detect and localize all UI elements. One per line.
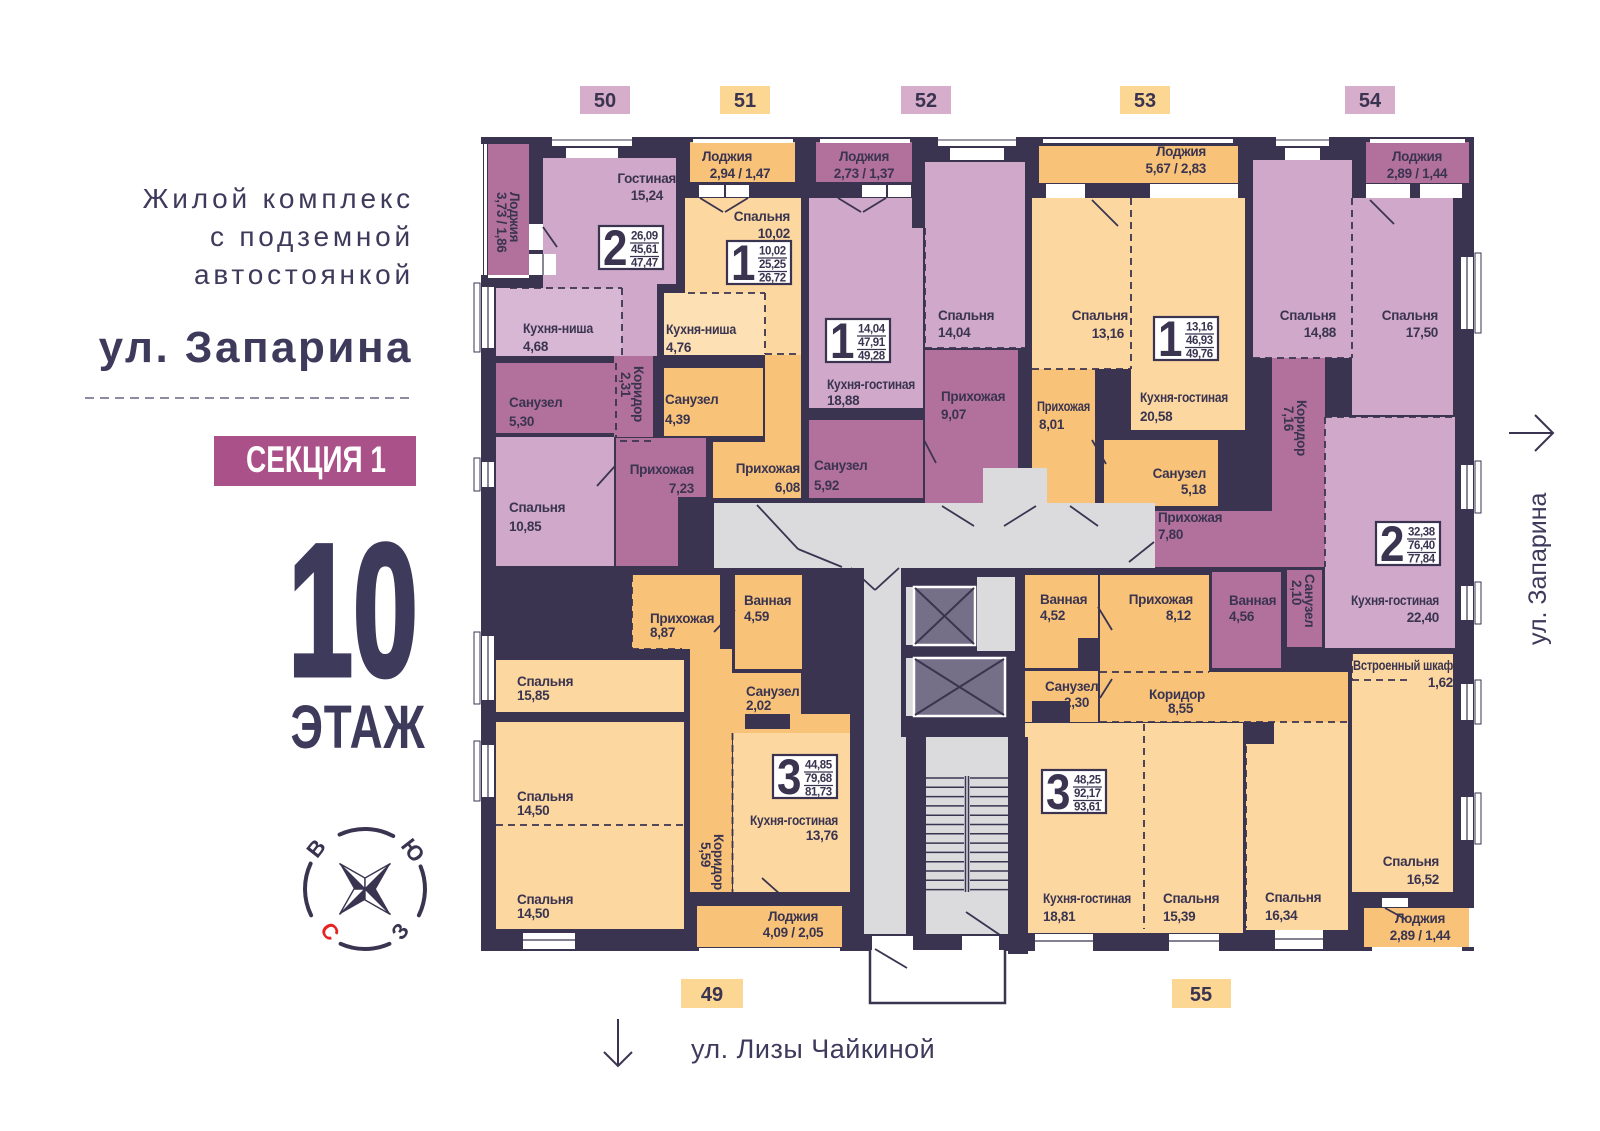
svg-text:5,18: 5,18	[1181, 482, 1207, 497]
svg-text:Лоджия: Лоджия	[839, 149, 889, 164]
svg-text:5,92: 5,92	[814, 478, 839, 493]
svg-text:3: 3	[777, 748, 801, 804]
svg-text:26,09: 26,09	[631, 231, 658, 243]
svg-text:45,61: 45,61	[631, 244, 659, 256]
svg-text:2,89 / 1,44: 2,89 / 1,44	[1387, 166, 1448, 181]
svg-text:7,80: 7,80	[1158, 527, 1183, 542]
svg-text:14,04: 14,04	[858, 324, 886, 336]
svg-text:49: 49	[701, 984, 723, 1006]
svg-text:Спальня: Спальня	[1280, 308, 1336, 323]
svg-text:Спальня: Спальня	[734, 209, 790, 224]
svg-text:14,04: 14,04	[938, 325, 971, 340]
svg-text:5,67 / 2,83: 5,67 / 2,83	[1145, 161, 1206, 176]
svg-text:Кухня-гостиная: Кухня-гостиная	[1140, 390, 1228, 405]
svg-text:22,40: 22,40	[1407, 610, 1439, 625]
svg-text:7,16: 7,16	[1281, 406, 1296, 432]
svg-text:Прихожая: Прихожая	[1037, 399, 1090, 414]
svg-text:Встроенный шкаф: Встроенный шкаф	[1353, 658, 1453, 673]
svg-text:Ванная: Ванная	[744, 593, 791, 608]
svg-text:7,23: 7,23	[669, 481, 695, 496]
svg-text:Кухня-ниша: Кухня-ниша	[666, 322, 737, 337]
svg-text:Коридор: Коридор	[1294, 400, 1309, 456]
svg-text:54: 54	[1359, 90, 1382, 112]
svg-text:13,76: 13,76	[806, 828, 839, 843]
svg-text:Лоджия: Лоджия	[1392, 149, 1442, 164]
svg-text:16,52: 16,52	[1407, 872, 1439, 887]
svg-text:1: 1	[731, 234, 755, 290]
svg-text:1: 1	[1158, 310, 1182, 366]
svg-text:Спальня: Спальня	[509, 500, 565, 515]
svg-text:2: 2	[603, 219, 627, 275]
svg-text:16,34: 16,34	[1265, 908, 1298, 923]
svg-text:51: 51	[734, 90, 756, 112]
svg-text:26,72: 26,72	[759, 273, 786, 285]
svg-text:4,59: 4,59	[744, 609, 769, 624]
svg-text:81,73: 81,73	[805, 787, 832, 799]
svg-text:4,09 / 2,05: 4,09 / 2,05	[763, 925, 824, 940]
svg-text:ул. Запарина: ул. Запарина	[99, 323, 413, 372]
svg-text:Спальня: Спальня	[517, 892, 573, 907]
svg-text:10,85: 10,85	[509, 519, 542, 534]
svg-text:Спальня: Спальня	[1163, 891, 1219, 906]
svg-text:32,38: 32,38	[1408, 527, 1436, 539]
svg-text:Кухня-гостиная: Кухня-гостиная	[1043, 891, 1131, 906]
svg-text:Спальня: Спальня	[1265, 890, 1321, 905]
svg-text:Санузел: Санузел	[1153, 466, 1206, 481]
svg-text:77,84: 77,84	[1408, 554, 1436, 566]
svg-text:4,76: 4,76	[666, 340, 692, 355]
svg-text:25,25: 25,25	[759, 259, 787, 271]
svg-text:Санузел: Санузел	[1045, 679, 1098, 694]
svg-text:Лоджия: Лоджия	[768, 909, 818, 924]
svg-text:Прихожая: Прихожая	[736, 461, 800, 476]
svg-text:2,73 / 1,37: 2,73 / 1,37	[834, 166, 895, 181]
svg-text:Спальня: Спальня	[1383, 854, 1439, 869]
svg-text:Коридор: Коридор	[1149, 687, 1205, 702]
svg-text:49,76: 49,76	[1186, 349, 1213, 361]
svg-text:44,85: 44,85	[805, 760, 833, 772]
svg-text:Санузел: Санузел	[1302, 574, 1317, 627]
svg-text:4,56: 4,56	[1229, 609, 1255, 624]
svg-text:Гостиная: Гостиная	[617, 171, 676, 186]
svg-text:79,68: 79,68	[805, 773, 833, 785]
svg-text:18,88: 18,88	[827, 393, 860, 408]
svg-text:3,73 / 1,86: 3,73 / 1,86	[494, 192, 509, 253]
svg-text:Спальня: Спальня	[517, 674, 573, 689]
svg-text:15,85: 15,85	[517, 688, 550, 703]
svg-text:Прихожая: Прихожая	[630, 462, 694, 477]
svg-text:Ванная: Ванная	[1040, 592, 1087, 607]
svg-text:18,81: 18,81	[1043, 909, 1076, 924]
svg-text:Жилой комплекс: Жилой комплекс	[143, 183, 414, 214]
svg-text:8,01: 8,01	[1039, 417, 1065, 432]
svg-text:8,12: 8,12	[1166, 608, 1191, 623]
svg-text:46,93: 46,93	[1186, 335, 1213, 347]
svg-text:2,89 / 1,44: 2,89 / 1,44	[1390, 928, 1451, 943]
svg-text:6,08: 6,08	[775, 480, 801, 495]
svg-text:8,55: 8,55	[1168, 701, 1194, 716]
svg-text:с подземной: с подземной	[210, 221, 414, 252]
svg-text:Спальня: Спальня	[1072, 308, 1128, 323]
svg-text:Кухня-ниша: Кухня-ниша	[523, 321, 594, 336]
svg-text:8,87: 8,87	[650, 625, 675, 640]
svg-text:2,94 / 1,47: 2,94 / 1,47	[710, 166, 771, 181]
svg-text:Коридор: Коридор	[711, 834, 726, 890]
svg-text:55: 55	[1190, 984, 1212, 1006]
svg-text:2,10: 2,10	[1289, 580, 1304, 605]
svg-text:10,02: 10,02	[758, 226, 790, 241]
svg-text:Санузел: Санузел	[509, 395, 562, 410]
svg-text:14,50: 14,50	[517, 906, 549, 921]
svg-text:Спальня: Спальня	[938, 308, 994, 323]
svg-text:Кухня-гостиная: Кухня-гостиная	[750, 813, 838, 828]
svg-text:49,28: 49,28	[858, 351, 886, 363]
svg-text:47,47: 47,47	[631, 258, 658, 270]
svg-text:50: 50	[594, 90, 616, 112]
svg-text:20,58: 20,58	[1140, 409, 1173, 424]
svg-text:Коридор: Коридор	[631, 366, 646, 422]
svg-text:2,02: 2,02	[746, 698, 771, 713]
svg-text:Прихожая: Прихожая	[1158, 510, 1222, 525]
svg-text:Санузел: Санузел	[814, 458, 867, 473]
svg-text:автостоянкой: автостоянкой	[194, 259, 414, 290]
svg-text:13,16: 13,16	[1186, 322, 1213, 334]
svg-text:ЭТАЖ: ЭТАЖ	[291, 694, 426, 762]
svg-text:17,50: 17,50	[1406, 325, 1438, 340]
svg-text:2: 2	[1380, 515, 1404, 571]
svg-text:93,61: 93,61	[1074, 802, 1102, 814]
svg-text:76,40: 76,40	[1408, 540, 1435, 552]
svg-text:Лоджия: Лоджия	[702, 149, 752, 164]
svg-text:52: 52	[915, 90, 937, 112]
svg-text:Прихожая: Прихожая	[650, 611, 714, 626]
svg-text:4,52: 4,52	[1040, 608, 1065, 623]
svg-text:1: 1	[830, 312, 854, 368]
svg-text:14,88: 14,88	[1304, 325, 1337, 340]
svg-text:Санузел: Санузел	[665, 392, 718, 407]
svg-text:15,24: 15,24	[631, 188, 664, 203]
svg-text:Ванная: Ванная	[1229, 593, 1276, 608]
svg-text:53: 53	[1134, 90, 1156, 112]
svg-text:5,59: 5,59	[698, 842, 713, 867]
svg-text:1,62: 1,62	[1428, 675, 1453, 690]
svg-text:Лоджия: Лоджия	[1156, 144, 1206, 159]
svg-text:5,30: 5,30	[509, 414, 534, 429]
svg-text:2,30: 2,30	[1064, 695, 1089, 710]
svg-text:Лоджия: Лоджия	[1395, 911, 1445, 926]
svg-text:15,39: 15,39	[1163, 909, 1195, 924]
svg-text:Прихожая: Прихожая	[941, 389, 1005, 404]
svg-text:СЕКЦИЯ 1: СЕКЦИЯ 1	[246, 439, 386, 480]
svg-text:3: 3	[1046, 763, 1070, 819]
svg-text:Спальня: Спальня	[1382, 308, 1438, 323]
svg-text:Кухня-гостиная: Кухня-гостиная	[1351, 593, 1439, 608]
svg-text:10,02: 10,02	[759, 246, 786, 258]
svg-text:Лоджия: Лоджия	[507, 192, 522, 242]
svg-text:Кухня-гостиная: Кухня-гостиная	[827, 377, 915, 392]
svg-text:14,50: 14,50	[517, 803, 549, 818]
svg-text:Спальня: Спальня	[517, 789, 573, 804]
svg-text:ул. Лизы Чайкиной: ул. Лизы Чайкиной	[691, 1034, 935, 1064]
svg-text:4,39: 4,39	[665, 412, 690, 427]
svg-text:Санузел: Санузел	[746, 684, 799, 699]
svg-text:Прихожая: Прихожая	[1129, 592, 1193, 607]
svg-text:2,31: 2,31	[618, 372, 633, 398]
svg-text:ул. Запарина: ул. Запарина	[1524, 492, 1552, 645]
svg-text:92,17: 92,17	[1074, 788, 1101, 800]
svg-text:47,91: 47,91	[858, 337, 886, 349]
svg-text:10: 10	[288, 506, 418, 716]
svg-text:9,07: 9,07	[941, 407, 966, 422]
svg-text:48,25: 48,25	[1074, 775, 1102, 787]
svg-text:4,68: 4,68	[523, 339, 549, 354]
svg-text:13,16: 13,16	[1092, 326, 1125, 341]
